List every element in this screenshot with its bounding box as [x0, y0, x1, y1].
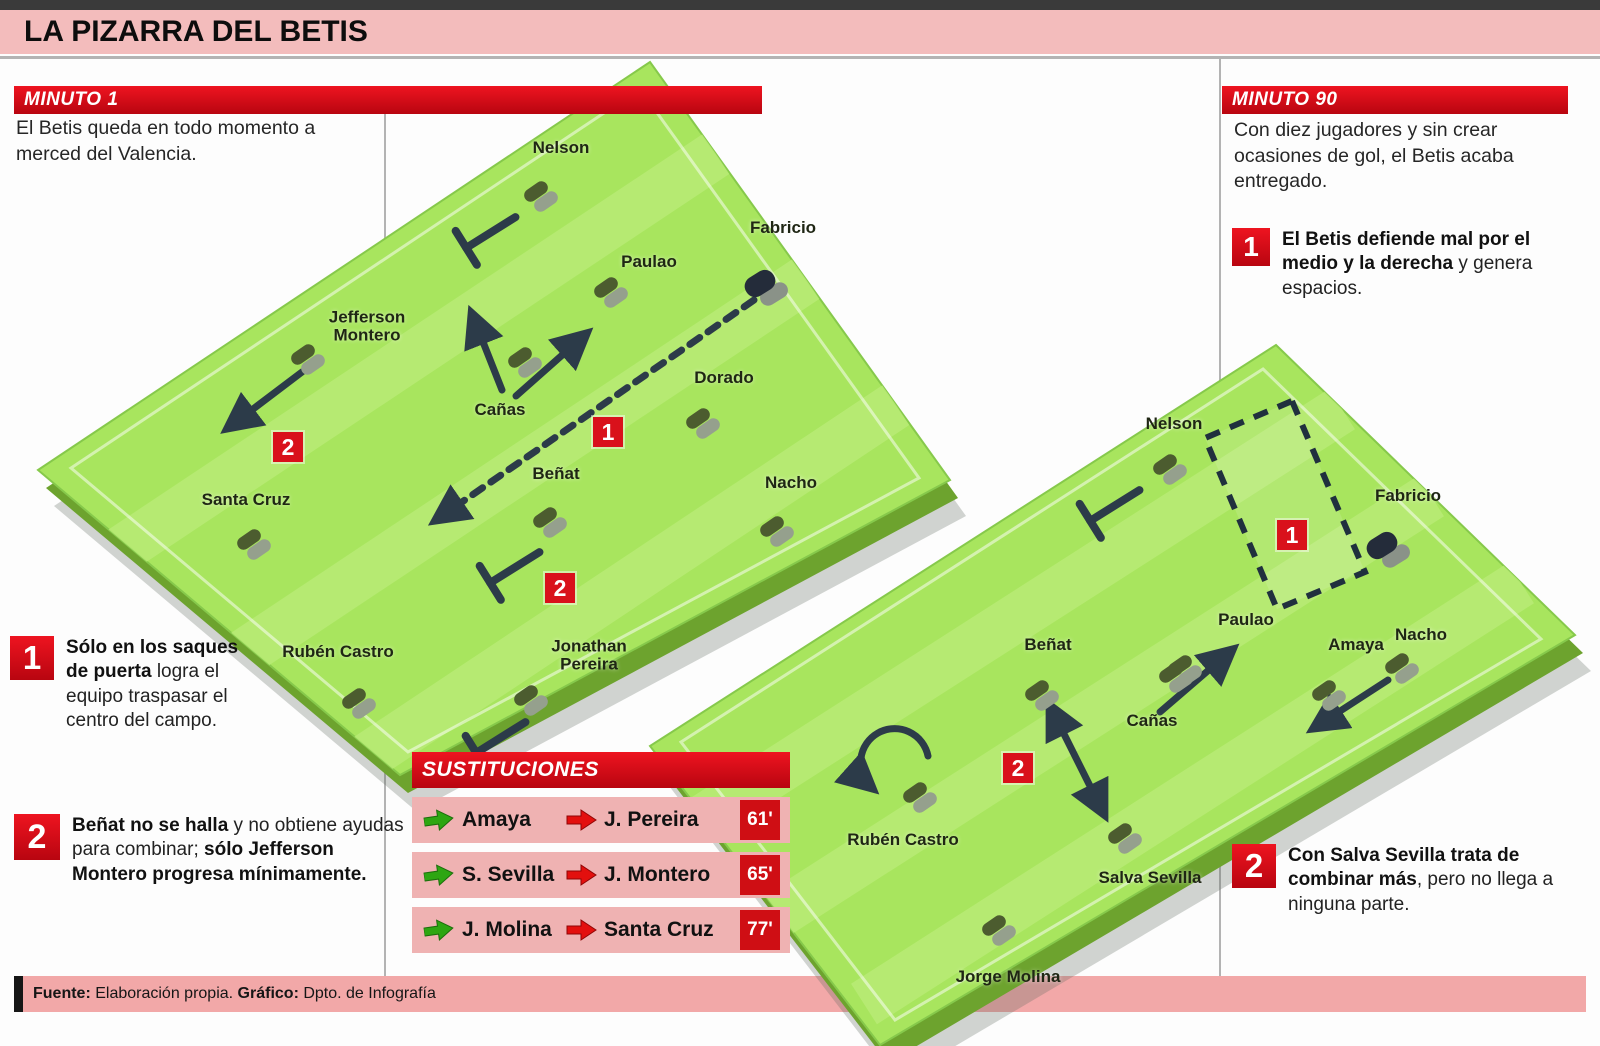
note-minute1-1: 1 Sólo en los saques de puerta logra el … [10, 636, 260, 733]
dashed-zone-rectangle [1205, 401, 1365, 609]
player-in-name: Amaya [462, 808, 566, 832]
player-label-paulao: Paulao [621, 253, 677, 271]
player-label-dorado: Dorado [694, 369, 754, 387]
tackle-mark-benat [480, 535, 550, 600]
minute90-header-label: MINUTO 90 [1232, 89, 1338, 110]
footer-source-text: Elaboración propia. [91, 985, 238, 1002]
minute1-intro: El Betis queda en todo momento a merced … [16, 116, 372, 167]
arrow-montero-run [228, 372, 302, 428]
substitution-minute-badge: 77' [740, 910, 780, 950]
substitution-row: J. Molina Santa Cruz 77' [412, 907, 790, 953]
player-label-jonathan-pereira: Jonathan Pereira [551, 637, 627, 672]
arrow-nacho-run [1314, 680, 1388, 728]
note-text: Beñat no se halla y no obtiene ayudas pa… [72, 814, 404, 887]
tackle-mark-nelson-90 [1080, 473, 1150, 538]
arrow-benat-salva-double [1050, 706, 1104, 814]
player-label-rub-n-castro: Rubén Castro [847, 831, 958, 849]
note-number-badge: 1 [10, 636, 54, 680]
minute90-intro: Con diez jugadores y sin crear ocasiones… [1234, 118, 1566, 195]
note-minute90-1: 1 El Betis defiende mal por el medio y l… [1232, 228, 1580, 301]
player-label-fabricio: Fabricio [1375, 487, 1441, 505]
title-band: LA PIZARRA DEL BETIS [0, 10, 1600, 54]
player-in-arrow-icon [423, 862, 456, 888]
player-label-santa-cruz: Santa Cruz [202, 491, 291, 509]
player-in-name: J. Molina [462, 918, 566, 942]
note-text: El Betis defiende mal por el medio y la … [1282, 228, 1578, 301]
player-label-jefferson-montero: Jefferson Montero [329, 308, 406, 343]
infographic-canvas: Fuente: Elaboración propia. Gráfico: Dpt… [0, 0, 1600, 1046]
note-text: Sólo en los saques de puerta logra el eq… [66, 636, 244, 733]
pitch-number-badge-2: 2 [1003, 753, 1033, 783]
minute1-header-label: MINUTO 1 [24, 89, 118, 110]
player-label-nelson: Nelson [1146, 415, 1203, 433]
tackle-mark-nelson [456, 200, 526, 265]
substitutions-panel: SUSTITUCIONES Amaya J. Pereira 61' S. Se… [412, 752, 790, 953]
pitch-number-badge-2: 2 [273, 432, 303, 462]
arrow-ruben-castro-turn [861, 729, 928, 788]
arrow-canas-paulao [1160, 650, 1232, 712]
substitution-row: S. Sevilla J. Montero 65' [412, 852, 790, 898]
player-out-arrow-icon [566, 919, 598, 941]
player-label-salva-sevilla: Salva Sevilla [1098, 869, 1201, 887]
player-label-nacho: Nacho [765, 474, 817, 492]
footer-source-label: Fuente: [33, 985, 91, 1002]
player-label-be-at: Beñat [532, 465, 579, 483]
note-minute1-2: 2 Beñat no se halla y no obtiene ayudas … [14, 814, 414, 887]
substitution-minute-badge: 61' [740, 800, 780, 840]
substitution-row: Amaya J. Pereira 61' [412, 797, 790, 843]
player-in-name: S. Sevilla [462, 863, 566, 887]
arrow-goal-kick-dashed [436, 300, 754, 520]
note-number-badge: 1 [1232, 228, 1270, 266]
note-number-badge: 2 [14, 814, 60, 860]
footer-credit: Fuente: Elaboración propia. Gráfico: Dpt… [14, 976, 1586, 1012]
note-minute90-2: 2 Con Salva Sevilla trata de combinar má… [1232, 844, 1584, 917]
player-in-arrow-icon [423, 917, 456, 943]
pitch-number-badge-1: 1 [1277, 520, 1307, 550]
player-label-rub-n-castro: Rubén Castro [282, 643, 393, 661]
minute1-header-bar: MINUTO 1 [14, 86, 762, 114]
footer-graphic-text: Dpto. de Infografía [299, 985, 436, 1002]
substitutions-header: SUSTITUCIONES [412, 752, 790, 788]
player-label-nelson: Nelson [533, 139, 590, 157]
right-column-divider [1219, 59, 1221, 976]
note-text: Con Salva Sevilla trata de combinar más,… [1288, 844, 1584, 917]
player-label-paulao: Paulao [1218, 611, 1274, 629]
player-label-ca-as: Cañas [1126, 712, 1177, 730]
page-title: LA PIZARRA DEL BETIS [0, 10, 1600, 54]
player-label-ca-as: Cañas [474, 401, 525, 419]
arrow-canas-up-right [516, 334, 586, 396]
substitution-minute-badge: 65' [740, 855, 780, 895]
note-number-badge: 2 [1232, 844, 1276, 888]
pitch-number-badge-2: 2 [545, 573, 575, 603]
player-in-arrow-icon [423, 807, 456, 833]
pitch-number-badge-1: 1 [593, 417, 623, 447]
player-label-be-at: Beñat [1024, 636, 1071, 654]
footer-graphic-label: Gráfico: [238, 985, 299, 1002]
minute90-header-bar: MINUTO 90 [1222, 86, 1568, 114]
substitutions-rows: Amaya J. Pereira 61' S. Sevilla J. Monte… [412, 797, 790, 953]
top-rule [0, 0, 1600, 10]
player-out-arrow-icon [566, 809, 598, 831]
pitch-minute90 [650, 345, 1591, 1046]
player-label-fabricio: Fabricio [750, 219, 816, 237]
player-label-amaya: Amaya [1328, 636, 1384, 654]
player-out-arrow-icon [566, 864, 598, 886]
movement-arrows [228, 300, 1388, 814]
arrow-canas-up-left [472, 314, 502, 390]
horizontal-rule [0, 56, 1600, 59]
tackle-marks [456, 200, 1150, 770]
player-label-nacho: Nacho [1395, 626, 1447, 644]
note-text-segment: Beñat no se halla [72, 815, 234, 836]
